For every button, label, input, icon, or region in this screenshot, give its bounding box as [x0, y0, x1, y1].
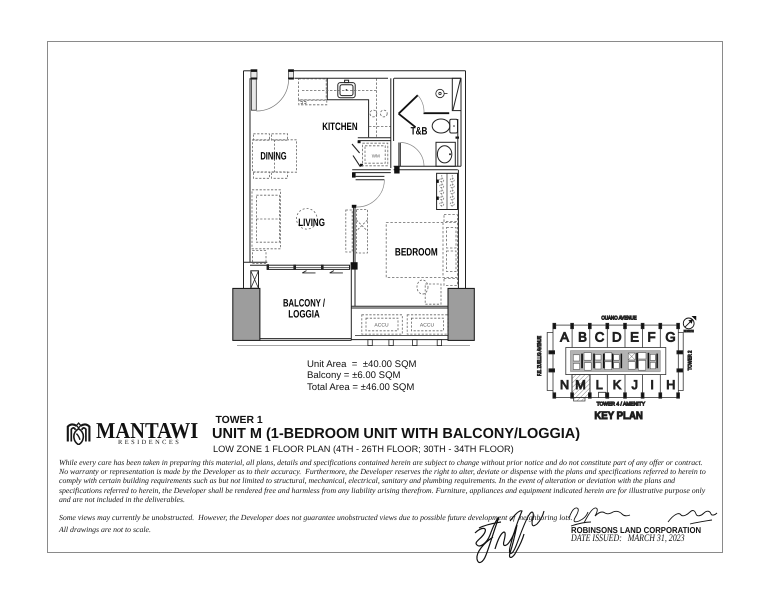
svg-text:A: A	[560, 330, 569, 345]
svg-text:ACCU: ACCU	[374, 323, 389, 329]
svg-text:TOWER 2: TOWER 2	[688, 351, 694, 371]
svg-text:LIVING: LIVING	[298, 217, 325, 229]
svg-text:TOWER 4 / AMENITY: TOWER 4 / AMENITY	[597, 402, 646, 408]
svg-text:NORTH: NORTH	[684, 329, 694, 333]
svg-text:T&B: T&B	[411, 126, 428, 138]
svg-text:I: I	[650, 378, 654, 392]
svg-text:G: G	[665, 330, 675, 345]
svg-text:ACCU: ACCU	[420, 323, 435, 329]
svg-text:OUANO AVENUE: OUANO AVENUE	[601, 315, 637, 321]
svg-text:N: N	[560, 378, 569, 392]
svg-text:B: B	[578, 330, 587, 345]
svg-text:LOGGIA: LOGGIA	[288, 308, 320, 320]
svg-text:KEY PLAN: KEY PLAN	[594, 410, 643, 422]
svg-text:KITCHEN: KITCHEN	[322, 121, 358, 133]
svg-text:DINING: DINING	[260, 150, 286, 162]
svg-text:J: J	[632, 378, 638, 392]
svg-text:H: H	[666, 378, 675, 392]
svg-text:D: D	[612, 330, 622, 345]
svg-text:C: C	[595, 330, 605, 345]
svg-text:BEDROOM: BEDROOM	[395, 246, 438, 258]
svg-text:K: K	[613, 378, 622, 392]
svg-text:M: M	[575, 378, 586, 392]
svg-text:F: F	[647, 330, 655, 345]
svg-text:L: L	[596, 378, 603, 392]
svg-text:WM: WM	[372, 154, 380, 159]
svg-text:E: E	[630, 330, 639, 345]
svg-text:F.E. ZUELLIG AVENUE: F.E. ZUELLIG AVENUE	[537, 336, 543, 376]
